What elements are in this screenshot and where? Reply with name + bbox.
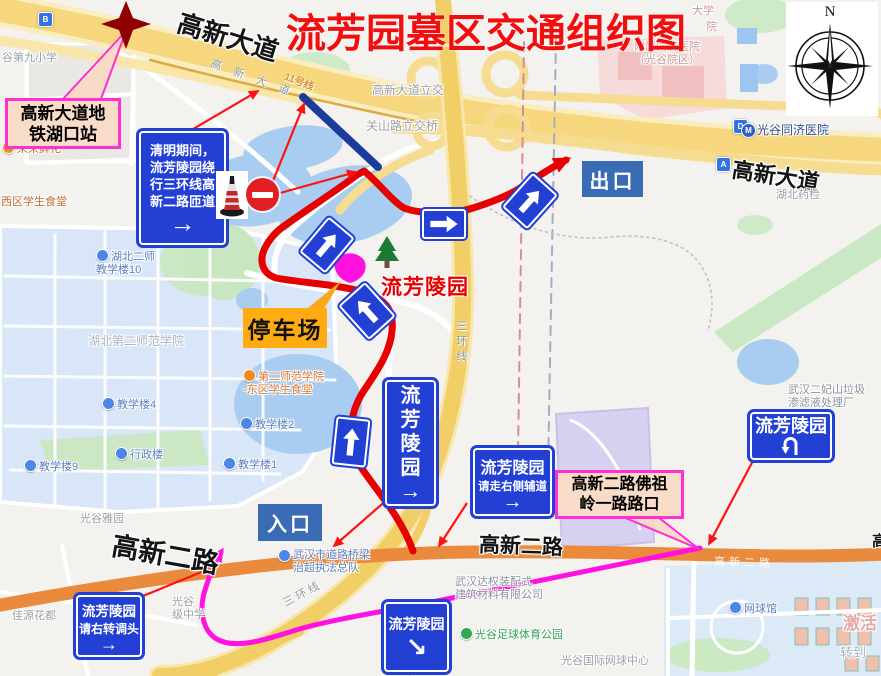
down-right-sign: 流芳陵园 ↘ xyxy=(384,602,449,672)
right-arrow-icon: → xyxy=(503,494,523,510)
compass-rose-icon: N xyxy=(786,2,878,116)
poi-label: 佳源花都 xyxy=(12,610,56,623)
route-arrow-sign xyxy=(422,209,466,239)
poi-building-icon xyxy=(115,447,128,460)
poi-label: 光谷 级中学 xyxy=(172,596,205,621)
qingming-detour-sign: 清明期间， 流芳陵园绕 行三环线高 新二路匝道 → xyxy=(139,131,226,245)
poi-label: 西区学生食堂 xyxy=(1,196,67,209)
metro-station-callout: 高新大道地 铁湖口站 xyxy=(5,98,121,149)
poi-building-icon xyxy=(223,457,236,470)
poi-building-icon xyxy=(102,397,115,410)
road-label-gaoxin2-partial: 高 xyxy=(872,530,881,551)
poi-park-icon xyxy=(460,627,473,640)
poi-label: 光谷雅园 xyxy=(80,513,124,526)
poi-label: 湖北药检 xyxy=(776,189,820,202)
uturn-sign: 流芳陵园 xyxy=(750,412,832,460)
poi-building-icon xyxy=(240,417,253,430)
up-arrow-icon xyxy=(428,214,460,234)
poi-restaurant-icon xyxy=(243,369,256,382)
poi-government-icon xyxy=(278,549,291,562)
right-turn-uturn-sign: 流芳陵园 请右转调头 → xyxy=(76,595,142,657)
exit-label-box: 出口 xyxy=(582,161,643,197)
poi-label: 关山路立交桥 xyxy=(366,120,438,133)
poi-building-icon xyxy=(96,249,109,262)
watermark-text: 转到 xyxy=(840,647,866,660)
up-arrow-icon xyxy=(339,424,362,460)
poi-label: 湖北第二师范学院 xyxy=(88,335,184,348)
compass-n-label: N xyxy=(825,4,836,20)
parking-lot-label: 停车场 xyxy=(243,308,327,348)
poi-label: 教学楼9 xyxy=(24,459,78,474)
poi-label: 教学楼2 xyxy=(240,417,294,432)
right-arrow-icon: → xyxy=(100,637,118,652)
metro-entrance-b-icon: B xyxy=(38,12,53,27)
poi-label: 网球馆 xyxy=(729,601,777,616)
road-label-sanhuan-v: 三环线 xyxy=(453,320,469,365)
poi-label: 武汉达权装配式 建筑材料有限公司 xyxy=(455,576,543,601)
poi-label: 光谷国际网球中心 xyxy=(561,655,649,668)
poi-label: 第二师范学院 -东区学生食堂 xyxy=(243,369,324,396)
traffic-cone-icon xyxy=(216,171,248,219)
metro-entrance-a-icon: A xyxy=(716,157,731,172)
no-entry-icon xyxy=(246,178,279,211)
poi-label: 武汉市道路桥梁 治超执法总队 xyxy=(278,549,370,574)
page-title: 流芳园墓区交通组织图 xyxy=(286,1,686,59)
poi-label: 教学楼1 xyxy=(223,457,277,472)
poi-label: 高新大道立交 xyxy=(372,84,444,97)
metro-line-m-icon: M xyxy=(741,123,756,138)
poi-label: 行政楼 xyxy=(115,447,163,462)
right-arrow-icon: → xyxy=(170,212,196,234)
intersection-callout: 高新二路佛祖 岭一路路口 xyxy=(555,470,684,519)
route-arrow-sign xyxy=(332,416,371,467)
cemetery-name-label: 流芳陵园 xyxy=(381,271,469,301)
watermark-text: 激活 xyxy=(843,618,877,631)
side-road-sign: 流芳陵园 请走右侧辅道 → xyxy=(473,448,552,516)
poi-label: 谷第九小学 xyxy=(2,52,57,65)
entrance-label-box: 入口 xyxy=(258,504,322,541)
poi-label: 湖北二师 教学楼10 xyxy=(96,249,155,276)
down-right-arrow-icon: ↘ xyxy=(406,634,428,660)
poi-label: 武汉二妃山垃圾 渗滤液处理厂 xyxy=(788,384,865,409)
cemetery-vertical-sign: 流 芳 陵 园 → xyxy=(385,380,436,506)
right-arrow-icon: → xyxy=(400,480,422,502)
poi-label: 光谷同济医院 xyxy=(757,124,829,137)
poi-building-icon xyxy=(24,459,37,472)
poi-sport-icon xyxy=(729,601,742,614)
poi-label: 院 xyxy=(706,21,717,34)
poi-label: 光谷足球体育公园 xyxy=(460,627,563,642)
traffic-map: 流芳园墓区交通组织图 N xyxy=(0,0,881,676)
poi-label: 教学楼4 xyxy=(102,397,156,412)
road-label-gaoxin2-c: 高新二路 xyxy=(479,529,564,562)
uturn-arrow-icon xyxy=(780,436,802,456)
road-label-on-road: 高新二路 xyxy=(714,553,775,571)
poi-label: 大学 xyxy=(692,5,714,18)
up-arrow-icon xyxy=(349,292,385,329)
